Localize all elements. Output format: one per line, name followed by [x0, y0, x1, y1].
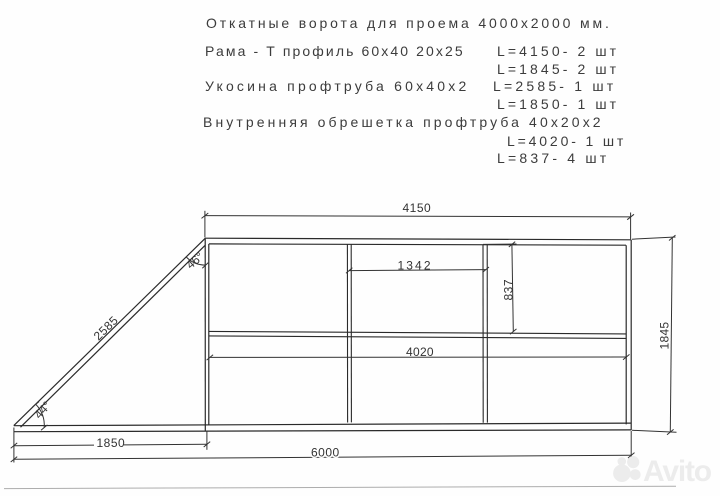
svg-text:46°: 46°	[183, 249, 206, 272]
svg-text:1342: 1342	[398, 259, 433, 273]
svg-text:1850: 1850	[97, 436, 126, 450]
svg-text:837: 837	[502, 279, 516, 301]
svg-text:Avito: Avito	[643, 455, 712, 488]
svg-text:2585: 2585	[91, 313, 121, 343]
svg-text:6000: 6000	[311, 446, 340, 460]
svg-text:44°: 44°	[31, 399, 54, 422]
svg-text:4150: 4150	[403, 201, 432, 215]
svg-text:4020: 4020	[406, 345, 434, 359]
svg-text:1845: 1845	[658, 322, 672, 350]
